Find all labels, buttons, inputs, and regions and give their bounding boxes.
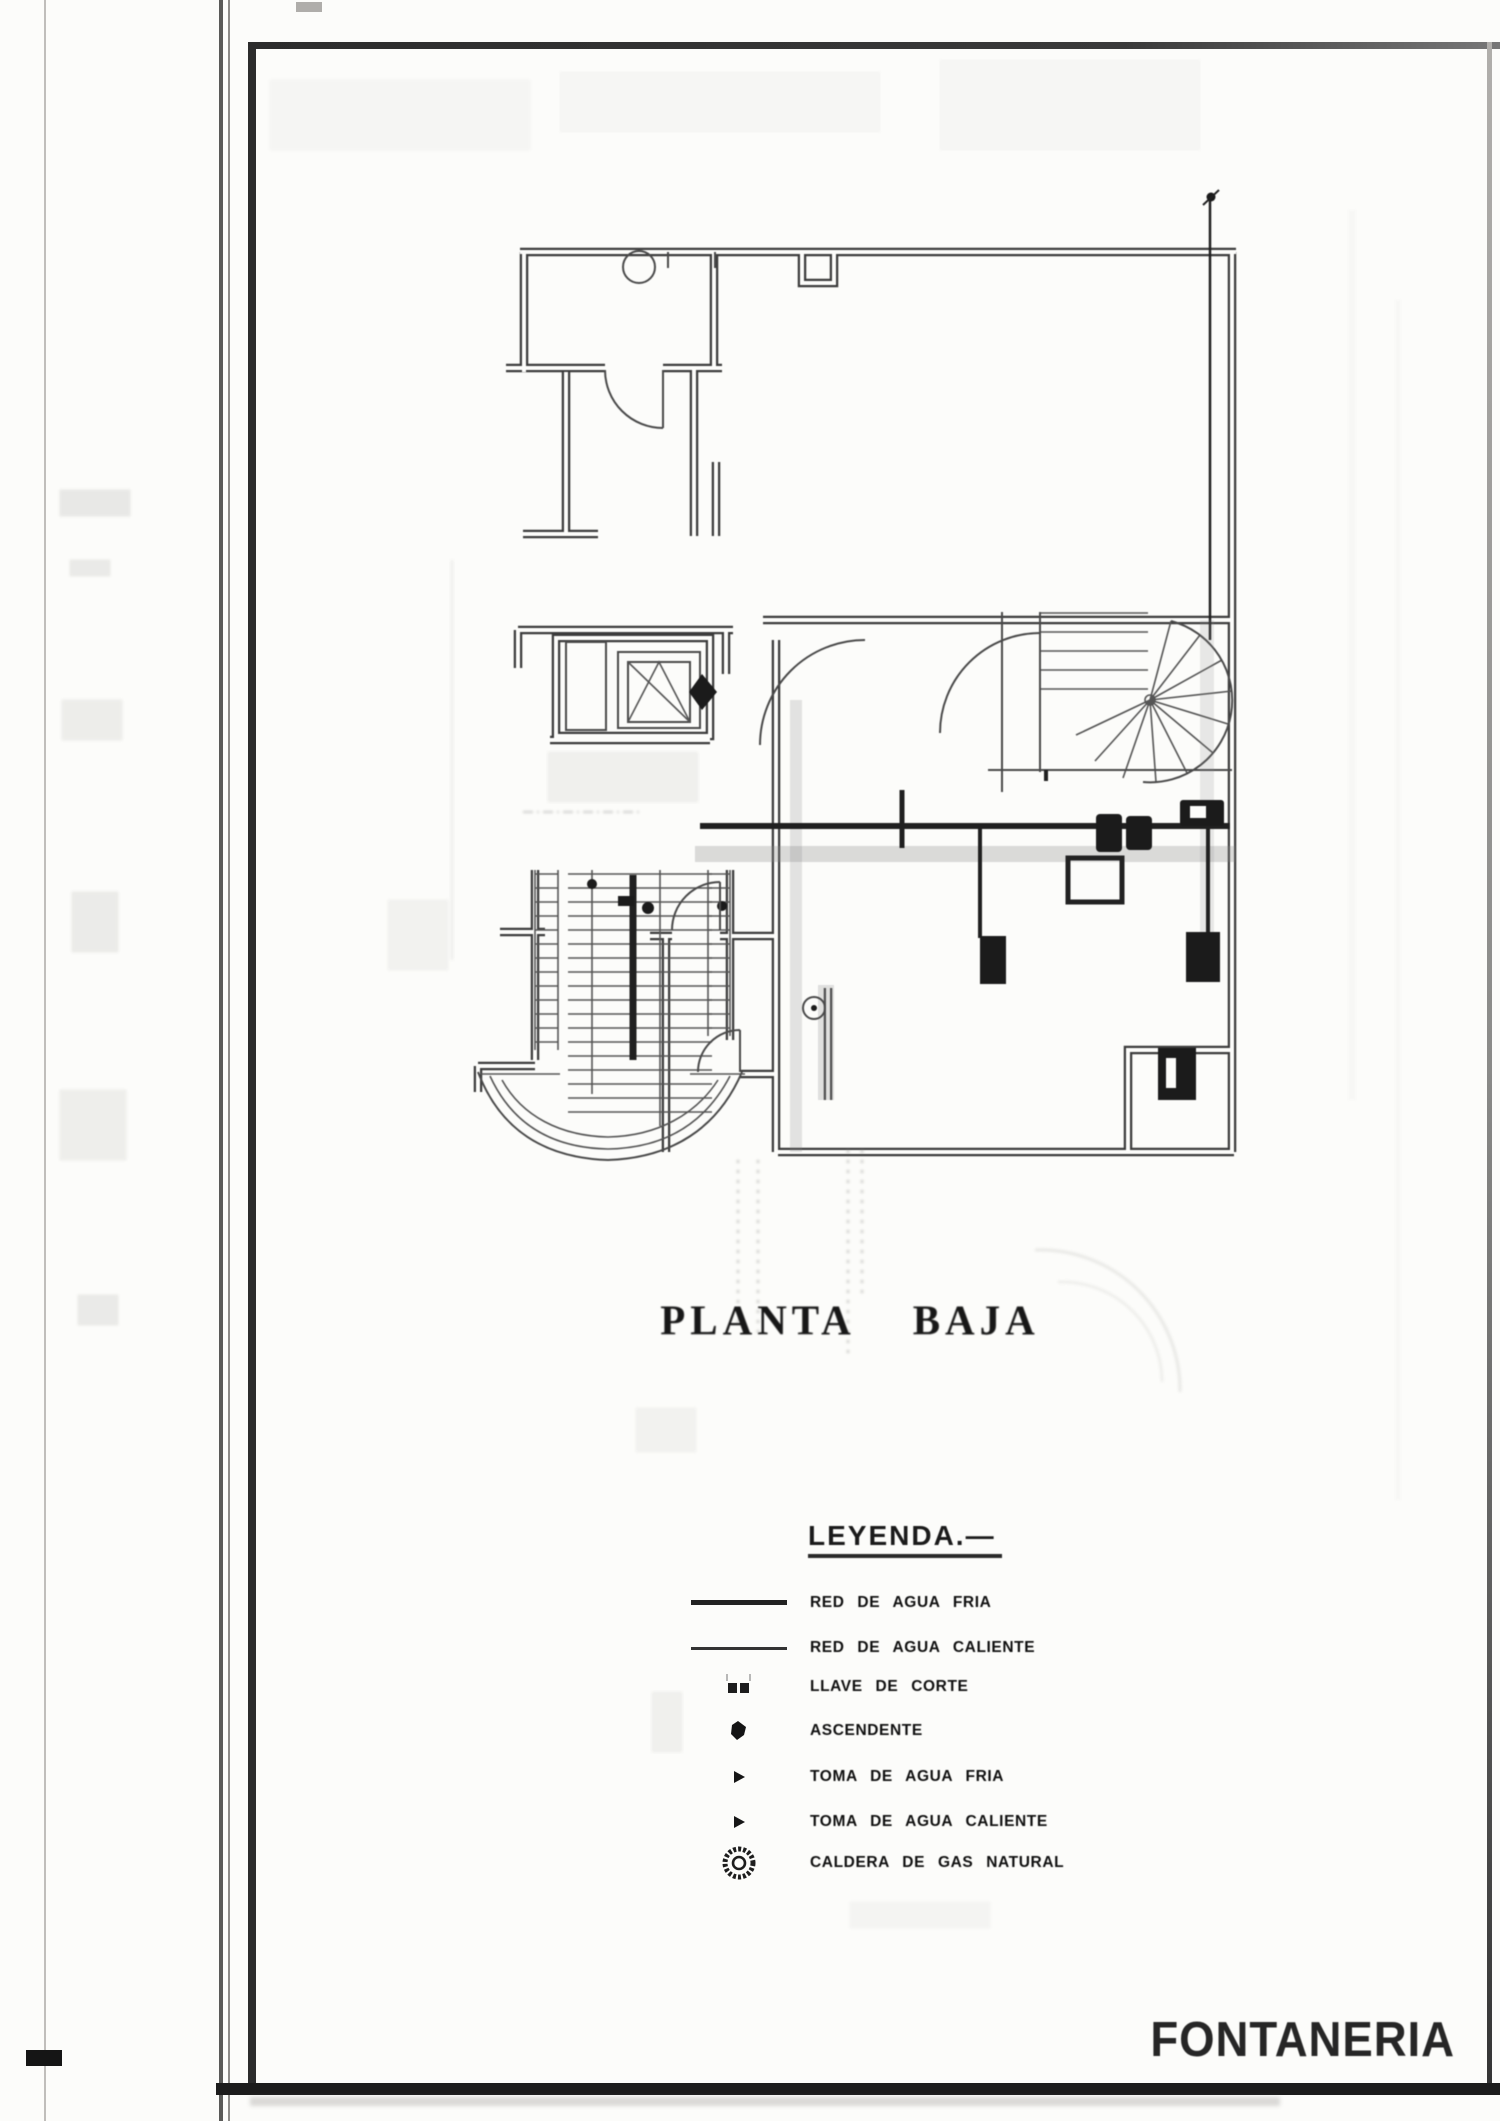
floor-plan-drawing [0, 0, 1500, 2121]
sheet-title: FONTANERIA [1106, 2012, 1455, 2068]
legend-item: RED DE AGUA CALIENTE [668, 1633, 1138, 1663]
plan-title: PLANTA BAJA [640, 1295, 1060, 1345]
cold-water-tap-icon [668, 1768, 810, 1786]
legend-item: LLAVE DE CORTE [668, 1672, 1138, 1702]
spiral-staircase [940, 612, 1232, 792]
legend-item: CALDERA DE GAS NATURAL [668, 1848, 1138, 1878]
cold-water-line-icon [668, 1596, 810, 1610]
hot-water-line-icon [668, 1641, 810, 1655]
legend-item-label: ASCENDENTE [810, 1722, 923, 1740]
main-staircase [478, 870, 745, 1160]
legend-item-label: LLAVE DE CORTE [810, 1678, 968, 1696]
gas-boiler-icon [668, 1843, 810, 1883]
legend-item-label: RED DE AGUA CALIENTE [810, 1639, 1035, 1657]
shutoff-valve-icon [668, 1674, 810, 1700]
legend-item: TOMA DE AGUA CALIENTE [668, 1807, 1138, 1837]
riser-icon [668, 1720, 810, 1742]
elevator [566, 642, 700, 730]
legend-item: RED DE AGUA FRIA [668, 1588, 1138, 1618]
legend-item-label: CALDERA DE GAS NATURAL [810, 1854, 1064, 1872]
legend-item-label: RED DE AGUA FRIA [810, 1594, 991, 1612]
hot-water-tap-icon [668, 1813, 810, 1831]
legend-heading: LEYENDA.— [808, 1520, 1002, 1558]
legend-item-label: TOMA DE AGUA FRIA [810, 1768, 1004, 1786]
legend-item: ASCENDENTE [668, 1716, 1138, 1746]
water-riser-pipe [1203, 190, 1219, 640]
legend-item-label: TOMA DE AGUA CALIENTE [810, 1813, 1048, 1831]
legend-item: TOMA DE AGUA FRIA [668, 1762, 1138, 1792]
